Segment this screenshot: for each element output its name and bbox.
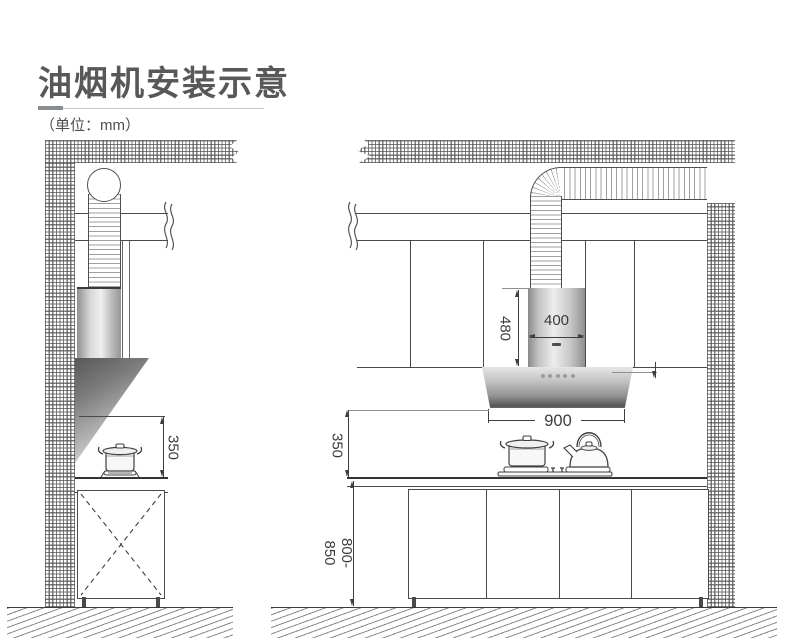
dim-800-850-label: 800-850 bbox=[321, 526, 355, 580]
dim-400-arrow-right bbox=[578, 334, 585, 338]
unit-note: （单位：mm） bbox=[40, 114, 140, 135]
right-hood-chimney-cover: 400 bbox=[528, 288, 585, 368]
right-ceiling bbox=[357, 140, 735, 163]
right-cabinet-leg bbox=[412, 597, 416, 607]
right-dim-350-extension-line bbox=[348, 410, 489, 411]
left-hood-bottom-extension-line bbox=[79, 416, 165, 417]
dim-400-line bbox=[530, 337, 583, 338]
left-base-cabinet bbox=[77, 490, 165, 599]
title-underline-accent bbox=[38, 106, 63, 110]
right-wall bbox=[707, 203, 735, 607]
page-title: 油烟机安装示意 bbox=[38, 56, 290, 105]
upper-cabinet-divider bbox=[585, 241, 586, 367]
dim-480-arrow-top bbox=[515, 290, 519, 297]
brand-logo bbox=[552, 343, 561, 346]
right-base-cabinet bbox=[408, 489, 709, 599]
left-cabinet-leg bbox=[82, 597, 86, 607]
dim-800-850-arrow-top bbox=[350, 481, 354, 488]
right-cabinet-leg bbox=[699, 597, 703, 607]
dim-800-850-arrow-bottom bbox=[350, 599, 354, 606]
left-duct-outlet-icon bbox=[87, 168, 121, 202]
right-hood-body bbox=[482, 367, 633, 408]
left-mount-brace bbox=[122, 241, 130, 358]
left-dim-350-arrow-top bbox=[160, 417, 164, 424]
dim-480-extension-line bbox=[502, 288, 528, 289]
left-dim-350-label: 350 bbox=[165, 430, 182, 466]
hood-edge-arrow bbox=[652, 371, 656, 378]
installation-diagram-page: 油烟机安装示意 （单位：mm） 350 bbox=[0, 0, 790, 641]
left-wall bbox=[45, 140, 75, 607]
hood-control-buttons bbox=[482, 374, 633, 378]
right-break-mark bbox=[344, 202, 362, 250]
hood-edge-leader-line bbox=[612, 372, 657, 373]
right-dim-350-line bbox=[348, 410, 349, 477]
left-cabinet-leg bbox=[156, 597, 160, 607]
upper-cabinet-divider bbox=[634, 241, 635, 367]
title-underline bbox=[38, 108, 264, 109]
dim-480-arrow-bottom bbox=[515, 359, 519, 366]
right-exhaust-duct-vertical bbox=[530, 196, 562, 288]
right-exhaust-duct-elbow bbox=[530, 167, 561, 198]
right-dim-350-arrow-top bbox=[345, 410, 349, 417]
left-floor bbox=[7, 607, 233, 638]
left-dim-350-arrow-bottom bbox=[160, 470, 164, 477]
base-cabinet-divider bbox=[631, 490, 632, 598]
dim-400-label: 400 bbox=[528, 312, 585, 329]
base-cabinet-divider bbox=[486, 490, 487, 598]
right-exhaust-duct-horizontal bbox=[559, 167, 707, 200]
right-floor bbox=[271, 607, 777, 638]
cabinet-x-mark bbox=[78, 491, 164, 598]
left-exhaust-duct bbox=[88, 194, 121, 288]
dim-480-line bbox=[518, 290, 519, 366]
dim-480-label: 480 bbox=[497, 311, 514, 347]
left-ceiling bbox=[45, 140, 239, 163]
upper-cabinet-divider bbox=[410, 241, 411, 367]
left-break-mark bbox=[160, 202, 178, 250]
dim-400-arrow-left bbox=[528, 334, 535, 338]
right-countertop bbox=[347, 477, 707, 487]
base-cabinet-divider bbox=[559, 490, 560, 598]
upper-cabinet-divider bbox=[483, 241, 484, 367]
right-dim-350-label: 350 bbox=[329, 428, 346, 464]
gas-cooktop-icon bbox=[492, 425, 618, 477]
left-hood-chimney-cover bbox=[77, 287, 121, 360]
left-pot-icon bbox=[90, 436, 150, 478]
right-dim-350-arrow-bottom bbox=[345, 470, 349, 477]
